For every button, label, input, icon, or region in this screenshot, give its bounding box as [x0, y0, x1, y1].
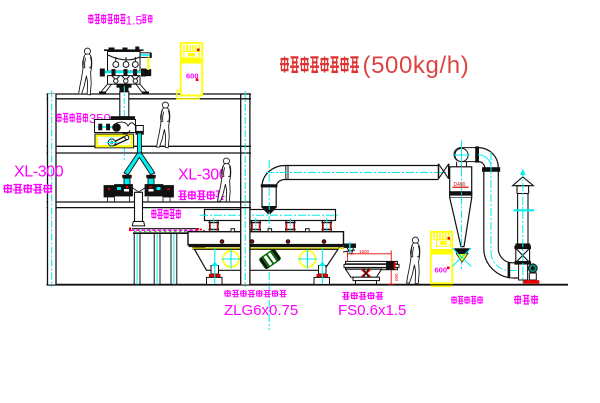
svg-text:XL-300: XL-300 — [14, 164, 64, 181]
svg-text:(500kg/h): (500kg/h) — [363, 52, 470, 79]
svg-text:1500: 1500 — [359, 249, 370, 254]
svg-text:600: 600 — [435, 266, 448, 275]
svg-text:500: 500 — [394, 274, 399, 282]
svg-text:XL-300: XL-300 — [178, 167, 228, 184]
svg-text:ZLG6x0.75: ZLG6x0.75 — [224, 302, 298, 319]
svg-text:1.5: 1.5 — [126, 14, 143, 28]
svg-text:FS0.6x1.5: FS0.6x1.5 — [338, 302, 406, 319]
